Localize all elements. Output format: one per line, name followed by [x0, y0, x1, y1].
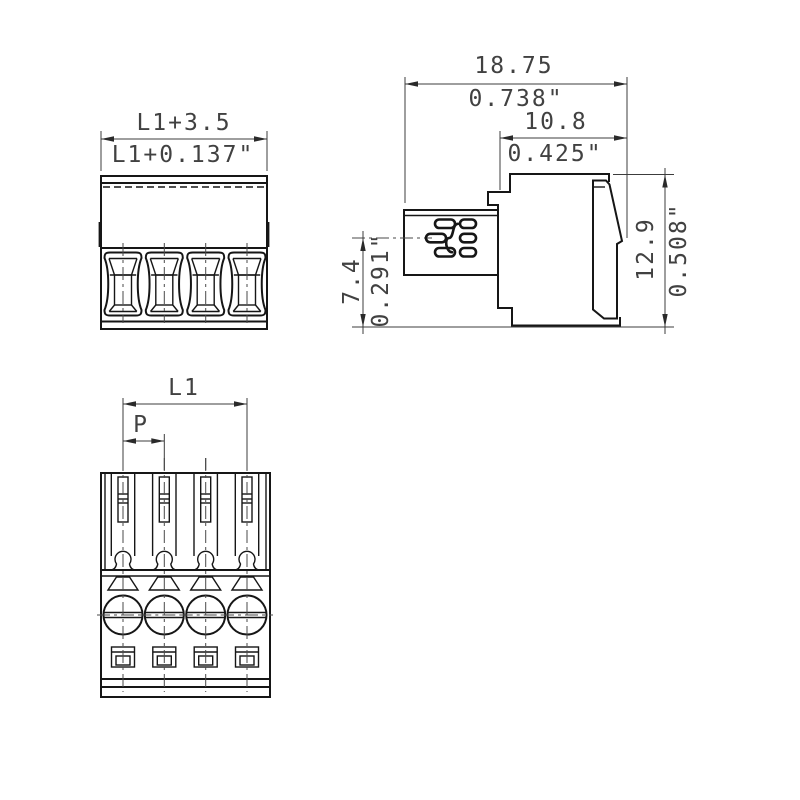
top-pitch-dimension: P [123, 412, 164, 470]
side-height-inch-label: 0.508" [666, 202, 692, 297]
side-clamp-axis-mm-label: 7.4 [339, 257, 365, 305]
manufacturer-logo-icon [426, 220, 476, 257]
side-upper-width-inch-label: 0.425" [507, 141, 602, 167]
top-pitch-label: P [133, 412, 149, 438]
side-clamp-axis-inch-label: 0.291" [368, 232, 394, 327]
front-width-inch-label: L1+0.137" [112, 142, 255, 168]
technical-drawing-canvas: L1+3.5 L1+0.137" [0, 0, 800, 800]
front-width-dimension: L1+3.5 L1+0.137" [101, 110, 267, 171]
side-upper-width-mm-label: 10.8 [524, 109, 587, 135]
top-length-label: L1 [168, 375, 200, 401]
terminal-block-dimension-drawing: L1+3.5 L1+0.137" [0, 0, 800, 800]
side-clamp-axis-dimension: 7.4 0.291" [339, 231, 394, 334]
side-overall-width-mm-label: 18.75 [474, 53, 553, 79]
side-height-mm-label: 12.9 [633, 217, 659, 280]
front-view: L1+3.5 L1+0.137" [99, 110, 268, 329]
top-view: L1 P [97, 375, 273, 697]
locking-latch [593, 181, 622, 319]
side-view: 18.75 0.738" 10.8 0.425" 12.9 0.508" [339, 53, 692, 334]
front-width-mm-label: L1+3.5 [136, 110, 231, 136]
side-upper-width-dimension: 10.8 0.425" [500, 109, 627, 190]
